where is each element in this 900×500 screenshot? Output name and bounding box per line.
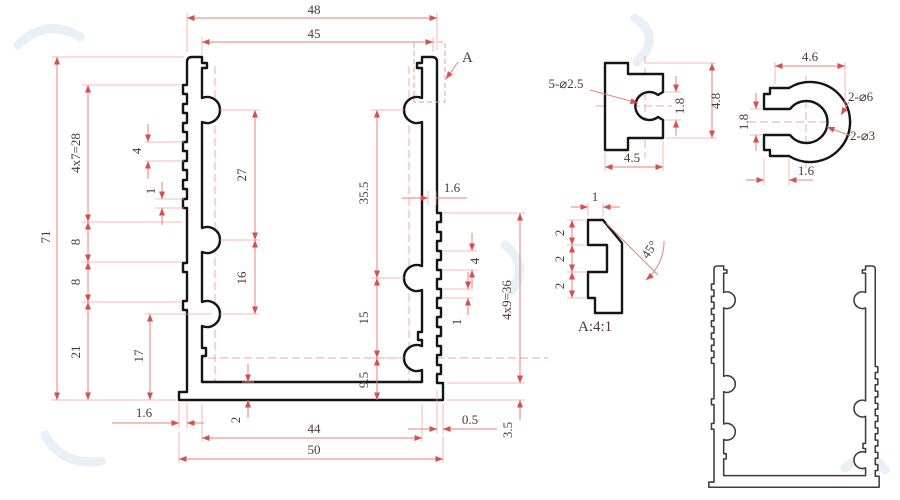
svg-text:0.5: 0.5 <box>462 412 478 427</box>
detail-slot-view: 5-⌀2.5 1.8 4.8 4.5 <box>549 56 723 171</box>
svg-text:1.6: 1.6 <box>798 163 815 178</box>
svg-text:4x7=28: 4x7=28 <box>68 133 83 173</box>
dim-ring-1-6: 1.6 <box>746 159 815 185</box>
svg-text:35.5: 35.5 <box>356 182 371 205</box>
dim-right-15: 15 <box>356 278 404 358</box>
svg-text:2: 2 <box>552 256 567 263</box>
svg-text:27: 27 <box>234 168 249 182</box>
watermark <box>18 18 885 470</box>
dim-height-overall: 71 <box>38 57 184 400</box>
dim-base-1-6: 1.6 <box>112 403 204 428</box>
dim-base-3-5: 3.5 <box>447 363 525 438</box>
svg-text:2-⌀3: 2-⌀3 <box>850 128 875 143</box>
svg-text:4.6: 4.6 <box>802 49 819 64</box>
dim-boss-spacing-16: 16 <box>220 240 260 314</box>
dim-boss-spacing-27: 27 <box>220 110 260 240</box>
detail-ring-view: 4.6 1.8 1.6 2-⌀6 2-⌀3 <box>736 49 875 185</box>
detail-slot-outline <box>605 63 663 150</box>
detail-a-view: 1 2 2 2 45° A:4:1 <box>552 189 664 335</box>
svg-text:4x9=36: 4x9=36 <box>499 280 514 320</box>
dim-rib-height-left: 1 <box>143 182 184 225</box>
svg-text:15: 15 <box>356 312 371 325</box>
dim-rib-pitch-small-left: 4 <box>129 124 184 179</box>
plain-profile-view <box>709 266 879 487</box>
svg-text:45°: 45° <box>638 238 661 262</box>
svg-text:1: 1 <box>449 319 464 326</box>
svg-text:44: 44 <box>308 421 322 436</box>
svg-text:4.8: 4.8 <box>708 93 723 109</box>
svg-text:2: 2 <box>228 417 243 424</box>
svg-text:9.5: 9.5 <box>356 372 371 388</box>
svg-text:1: 1 <box>592 189 599 204</box>
svg-text:21: 21 <box>68 346 83 359</box>
svg-text:48: 48 <box>308 2 321 17</box>
dim-width-inner-top: 45 <box>202 26 433 55</box>
dim-rib-height-right: 1 <box>443 272 473 325</box>
svg-text:2: 2 <box>552 283 567 290</box>
svg-text:45: 45 <box>308 26 321 41</box>
svg-text:8: 8 <box>68 279 83 286</box>
svg-text:71: 71 <box>38 231 53 244</box>
dim-right-35-5: 35.5 <box>356 110 404 278</box>
dim-spacing-8a: 8 <box>68 222 182 262</box>
dim-width-base: 50 <box>179 432 443 463</box>
svg-text:2-⌀6: 2-⌀6 <box>848 89 874 104</box>
svg-text:3.5: 3.5 <box>500 422 515 438</box>
svg-text:50: 50 <box>308 442 321 457</box>
main-view: A 48 45 71 4x7=28 8 <box>38 2 548 463</box>
detail-callout-label: A <box>462 50 473 66</box>
drawing-sheet: A 48 45 71 4x7=28 8 <box>0 0 900 500</box>
dim-a-steps: 2 2 2 <box>552 220 586 298</box>
svg-text:1.6: 1.6 <box>136 405 153 420</box>
svg-text:4.5: 4.5 <box>624 150 640 165</box>
detail-a-title: A:4:1 <box>578 319 612 335</box>
dim-slot-1-8: 1.8 <box>664 76 687 136</box>
svg-text:1: 1 <box>143 188 158 195</box>
svg-text:1.8: 1.8 <box>736 114 751 130</box>
dim-spacing-8b: 8 <box>68 262 182 302</box>
svg-text:5-⌀2.5: 5-⌀2.5 <box>549 76 584 91</box>
main-profile-outline <box>179 57 443 400</box>
svg-text:4: 4 <box>129 147 144 154</box>
svg-text:4: 4 <box>467 257 482 264</box>
svg-text:17: 17 <box>131 349 146 363</box>
dim-a-top-1: 1 <box>571 189 620 216</box>
svg-text:2: 2 <box>552 230 567 237</box>
svg-text:1.6: 1.6 <box>444 180 461 195</box>
svg-text:8: 8 <box>68 239 83 246</box>
dim-rib-pitch-small-right: 4 <box>443 233 482 288</box>
dim-bottom-left-21: 21 <box>68 302 88 400</box>
svg-text:16: 16 <box>234 271 249 285</box>
dim-ring-1-8: 1.8 <box>736 93 763 151</box>
svg-text:1.8: 1.8 <box>672 98 687 114</box>
dim-rib-pitch-left: 4x7=28 <box>68 85 182 222</box>
drawing-canvas: A 48 45 71 4x7=28 8 <box>0 0 900 500</box>
